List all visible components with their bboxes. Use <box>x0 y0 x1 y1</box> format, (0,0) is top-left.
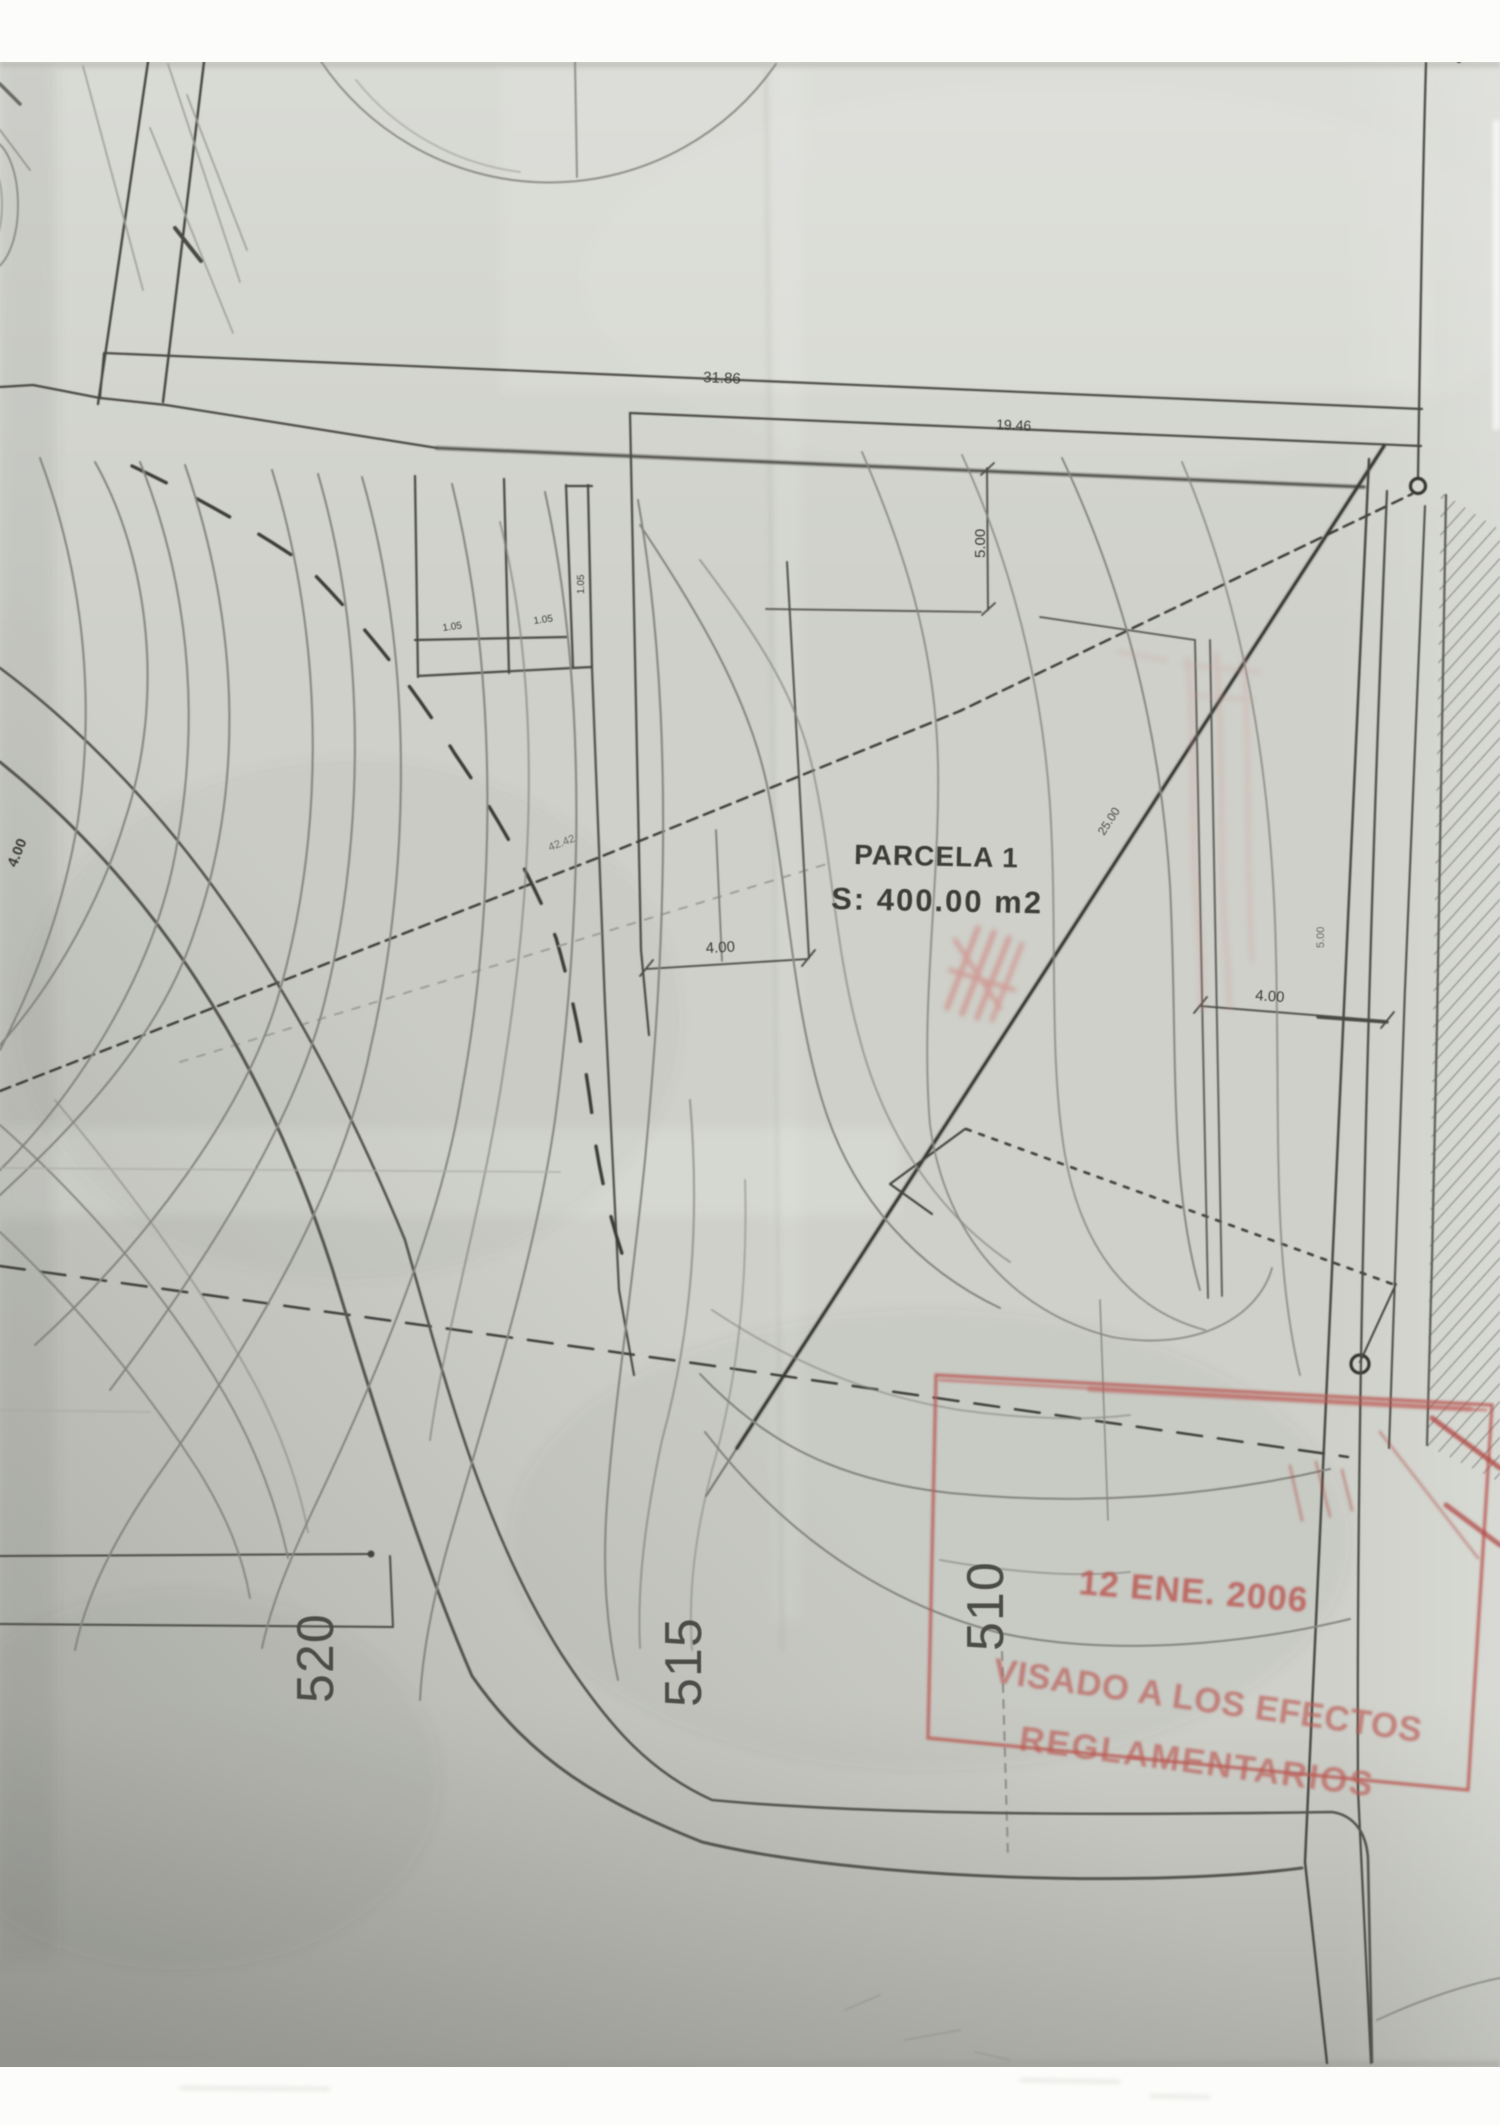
svg-text:4.00: 4.00 <box>1255 987 1285 1006</box>
svg-text:S: 400.00 m2: S: 400.00 m2 <box>831 881 1044 920</box>
svg-text:19.46: 19.46 <box>996 416 1032 434</box>
svg-text:5.00: 5.00 <box>1315 927 1327 948</box>
svg-text:510: 510 <box>957 1561 1015 1651</box>
svg-text:PARCELA 1: PARCELA 1 <box>854 839 1019 873</box>
svg-text:515: 515 <box>655 1617 713 1707</box>
svg-text:1.05: 1.05 <box>576 574 587 594</box>
svg-text:4.00: 4.00 <box>705 938 735 957</box>
svg-text:520: 520 <box>287 1613 345 1703</box>
svg-text:31.86: 31.86 <box>703 369 741 388</box>
svg-text:5.00: 5.00 <box>972 529 989 558</box>
